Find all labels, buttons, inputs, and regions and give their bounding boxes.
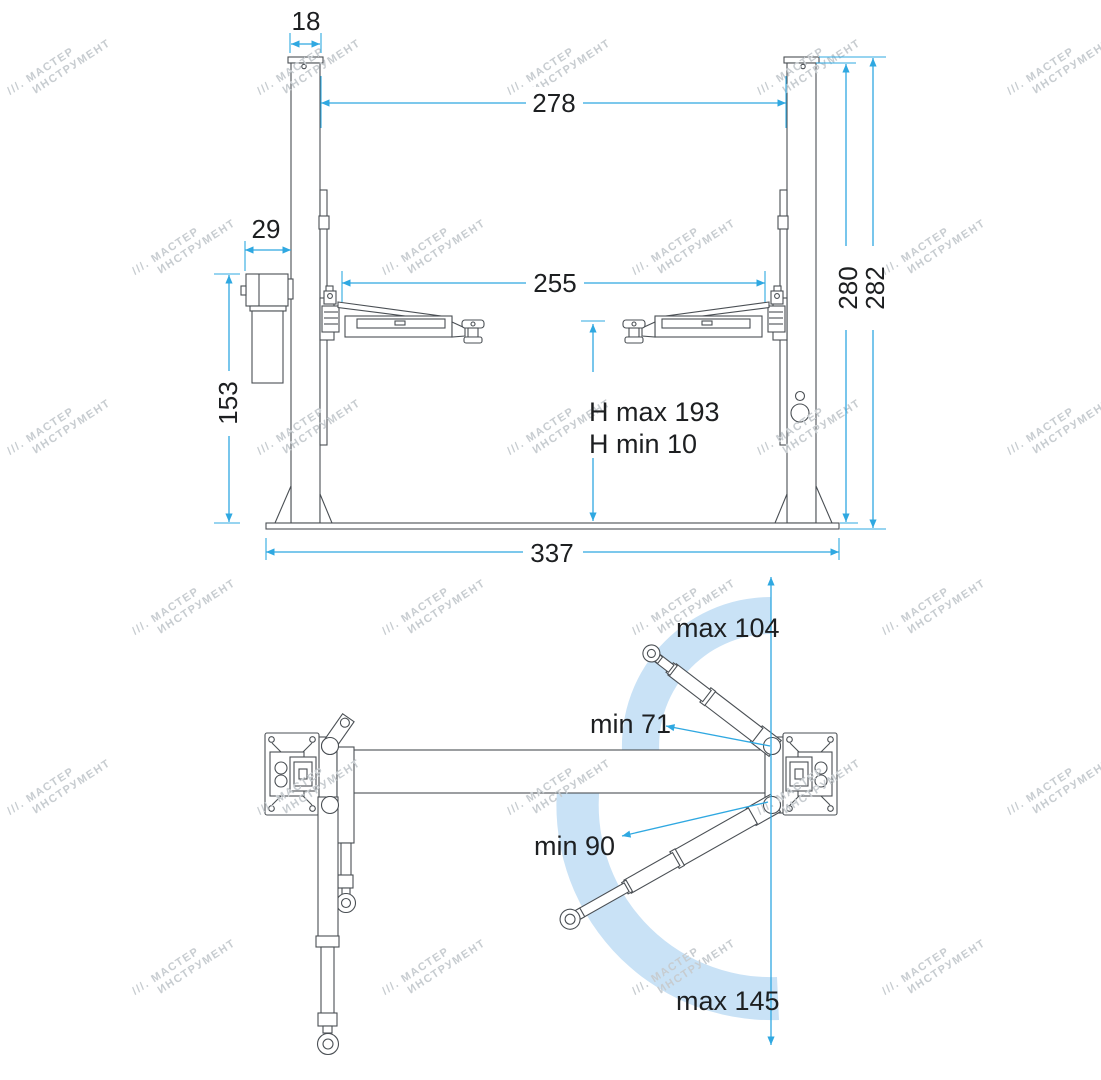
left-upper-pivot [322,738,339,755]
drawing-canvas: ///. МАСТЕР ИНСТРУМЕНТ [0,0,1101,1080]
motor-box [246,274,288,306]
dim-29-label: 29 [252,214,281,244]
dimension-power-unit-height: 153 [213,274,243,523]
label-rear-arm-max: max 145 [676,986,780,1016]
label-front-arm-max: max 104 [676,613,780,643]
dim-153-label: 153 [213,381,243,424]
dimension-base-width: 337 [266,537,839,568]
power-unit [241,274,293,383]
dimension-lift-height: H max 193 H min 10 [581,321,720,521]
lock-release-knob [796,392,805,401]
base-frame [266,486,839,529]
left-lower-pivot [322,797,339,814]
dim-280-label: 280 [833,266,863,309]
dim-337-label: 337 [530,538,573,568]
lift-dimension-drawing: ///. МАСТЕР ИНСТРУМЕНТ [0,0,1101,1080]
right-carriage-arm [623,286,787,343]
right-upper-pivot [764,738,781,755]
dimension-column-height: 280 282 [816,57,890,529]
label-front-arm-min: min 71 [590,709,671,739]
foundation-plate [266,523,839,529]
dimension-column-top-width: 18 [290,6,321,53]
left-column [288,57,329,523]
left-long-arm [316,797,339,1055]
label-rear-arm-min: min 90 [534,831,615,861]
dim-hmax-label: H max 193 [589,397,720,427]
dim-278-label: 278 [532,88,575,118]
oil-tank [252,311,283,383]
watermark-layer [5,26,1101,1008]
dimension-power-unit-width: 29 [245,214,291,271]
dim-18-label: 18 [292,6,321,36]
dimension-between-arms: 255 [342,267,765,302]
dim-282-label: 282 [860,266,890,309]
left-carriage-arm [320,286,484,343]
dim-255-label: 255 [533,268,576,298]
dim-hmin-label: H min 10 [589,429,697,459]
